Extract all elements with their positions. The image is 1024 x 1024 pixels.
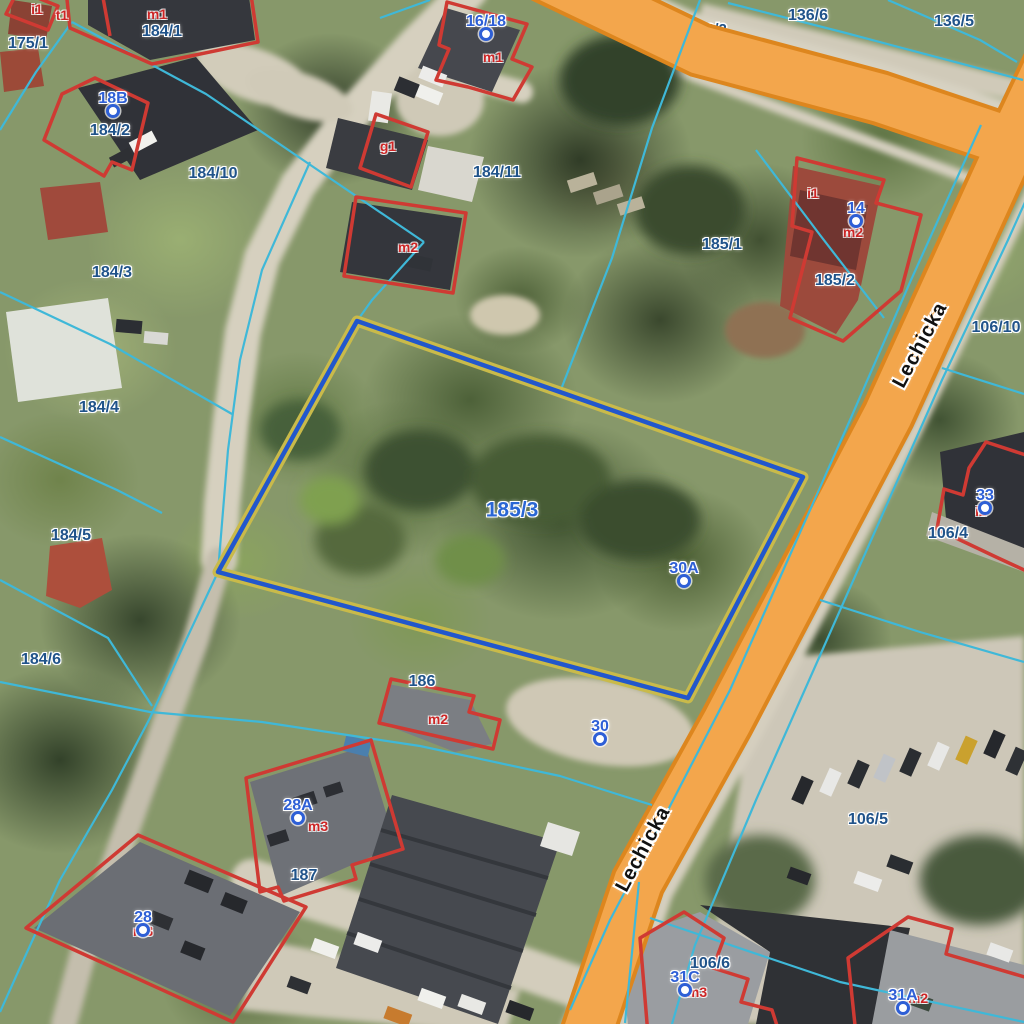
address-marker[interactable] (678, 983, 692, 997)
map-canvas[interactable]: 3/2 (0, 0, 1024, 1024)
address-marker[interactable] (593, 732, 607, 746)
address-marker[interactable] (106, 104, 120, 118)
map-graphics: 3/2 (0, 0, 1024, 1024)
address-marker[interactable] (978, 501, 992, 515)
address-marker[interactable] (896, 1001, 910, 1015)
address-marker[interactable] (677, 574, 691, 588)
address-marker[interactable] (291, 811, 305, 825)
address-marker[interactable] (479, 27, 493, 41)
address-marker[interactable] (136, 923, 150, 937)
address-marker[interactable] (849, 214, 863, 228)
